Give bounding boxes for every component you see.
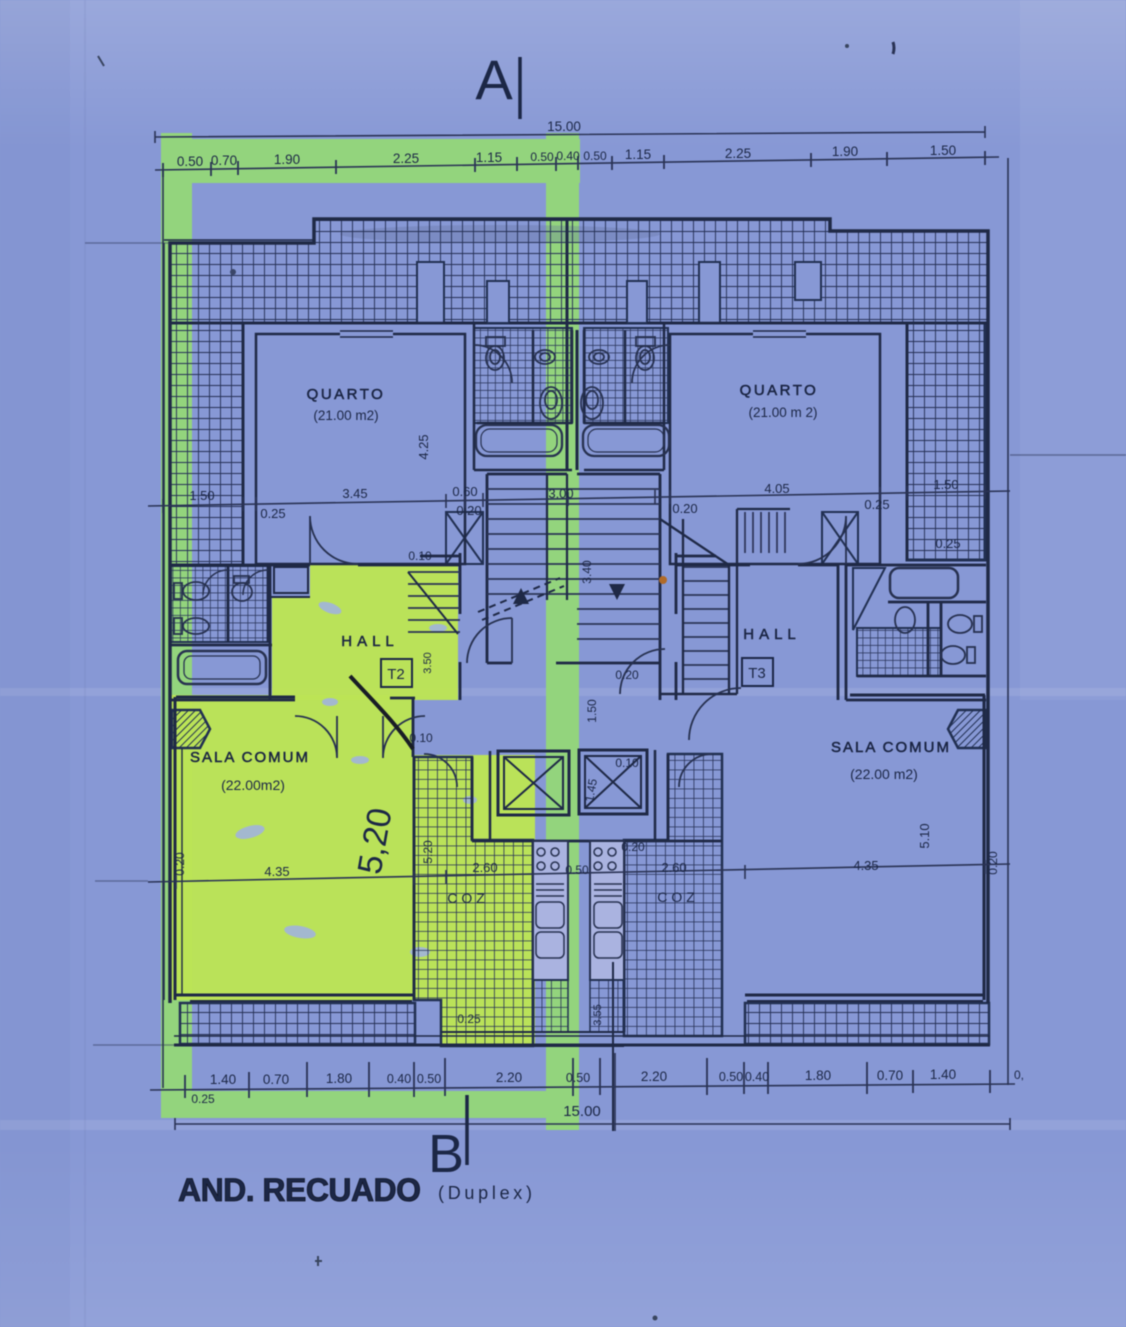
svg-text:1.80: 1.80 [805, 1068, 831, 1083]
svg-text:1.50: 1.50 [930, 143, 956, 158]
svg-text:4.35: 4.35 [853, 858, 878, 873]
svg-text:1.50: 1.50 [585, 699, 599, 723]
svg-text:1.15: 1.15 [476, 150, 502, 165]
svg-text:2.20: 2.20 [496, 1070, 522, 1085]
svg-text:0.10: 0.10 [409, 731, 433, 745]
svg-text:2.25: 2.25 [725, 146, 751, 161]
svg-text:QUARTO: QUARTO [307, 386, 386, 403]
svg-text:0.60: 0.60 [452, 484, 477, 499]
svg-text:(21.00 m 2): (21.00 m 2) [748, 405, 817, 420]
svg-text:COZ: COZ [657, 889, 699, 905]
svg-text:AND. RECUADO: AND. RECUADO [178, 1172, 421, 1208]
svg-text:0.40: 0.40 [387, 1072, 411, 1086]
svg-text:0.50: 0.50 [566, 1071, 590, 1085]
svg-text:0.50: 0.50 [719, 1070, 743, 1084]
svg-text:0.20: 0.20 [621, 840, 645, 854]
svg-text:COZ: COZ [447, 890, 489, 906]
svg-text:0,: 0, [1014, 1068, 1024, 1082]
svg-text:4.05: 4.05 [764, 481, 789, 496]
svg-text:(22.00 m2): (22.00 m2) [850, 766, 918, 782]
svg-text:1.90: 1.90 [274, 152, 300, 167]
svg-text:1.90: 1.90 [832, 144, 858, 159]
svg-text:2.20: 2.20 [641, 1069, 667, 1084]
svg-text:0.20: 0.20 [615, 668, 639, 682]
svg-text:0.40: 0.40 [745, 1070, 769, 1084]
svg-text:5.10: 5.10 [917, 823, 932, 848]
svg-text:0.25: 0.25 [260, 506, 285, 521]
svg-text:0.25: 0.25 [935, 536, 960, 551]
svg-text:0.40: 0.40 [556, 149, 580, 163]
svg-text:0.20: 0.20 [456, 503, 481, 518]
svg-text:SALA COMUM: SALA COMUM [190, 749, 310, 766]
svg-text:0.10: 0.10 [615, 756, 639, 770]
svg-text:0.70: 0.70 [211, 153, 237, 168]
svg-text:1.50: 1.50 [933, 477, 958, 492]
svg-text:0.70: 0.70 [877, 1068, 903, 1083]
svg-text:T3: T3 [748, 665, 766, 682]
svg-text:2.60: 2.60 [661, 860, 686, 875]
svg-text:A: A [475, 48, 513, 111]
svg-text:2.60: 2.60 [472, 860, 497, 875]
svg-text:B: B [428, 1124, 464, 1184]
svg-text:5.20: 5.20 [421, 840, 435, 864]
svg-text:2.25: 2.25 [393, 151, 419, 166]
svg-text:3.40: 3.40 [580, 560, 594, 584]
svg-text:0.50: 0.50 [530, 150, 554, 164]
svg-text:0.10: 0.10 [408, 549, 432, 563]
svg-text:0.20: 0.20 [173, 852, 187, 876]
svg-text:0.25: 0.25 [457, 1012, 481, 1026]
svg-text:0.25: 0.25 [191, 1092, 215, 1106]
svg-text:1.15: 1.15 [625, 147, 651, 162]
svg-text:(Duplex): (Duplex) [438, 1183, 532, 1203]
svg-text:0.25: 0.25 [864, 497, 889, 512]
svg-text:1.40: 1.40 [930, 1067, 956, 1082]
svg-text:15.00: 15.00 [563, 1103, 601, 1120]
svg-text:3.00: 3.00 [548, 486, 573, 501]
svg-text:1.50: 1.50 [189, 488, 214, 503]
svg-text:3.50: 3.50 [422, 652, 434, 673]
svg-text:0.50: 0.50 [417, 1072, 441, 1086]
svg-text:0.50: 0.50 [583, 149, 607, 163]
svg-text:15.00: 15.00 [547, 119, 581, 134]
svg-text:QUARTO: QUARTO [740, 382, 819, 399]
svg-text:4.25: 4.25 [416, 434, 431, 459]
svg-text:(21.00 m2): (21.00 m2) [313, 408, 378, 423]
svg-text:(22.00m2): (22.00m2) [221, 777, 285, 793]
svg-text:0.50: 0.50 [565, 863, 589, 877]
svg-text:0.50: 0.50 [177, 154, 203, 169]
svg-text:HALL: HALL [341, 633, 399, 650]
svg-text:T2: T2 [387, 666, 405, 683]
svg-text:4.35: 4.35 [264, 864, 289, 879]
svg-text:1.40: 1.40 [210, 1072, 236, 1087]
svg-text:0.70: 0.70 [263, 1072, 289, 1087]
svg-text:3.55: 3.55 [592, 1004, 604, 1025]
svg-text:3.45: 3.45 [342, 486, 367, 501]
svg-text:HALL: HALL [743, 626, 801, 643]
svg-text:0.20: 0.20 [672, 501, 697, 516]
svg-text:1.80: 1.80 [326, 1071, 352, 1086]
svg-text:SALA COMUM: SALA COMUM [831, 739, 951, 756]
svg-text:0.20: 0.20 [986, 851, 1000, 875]
